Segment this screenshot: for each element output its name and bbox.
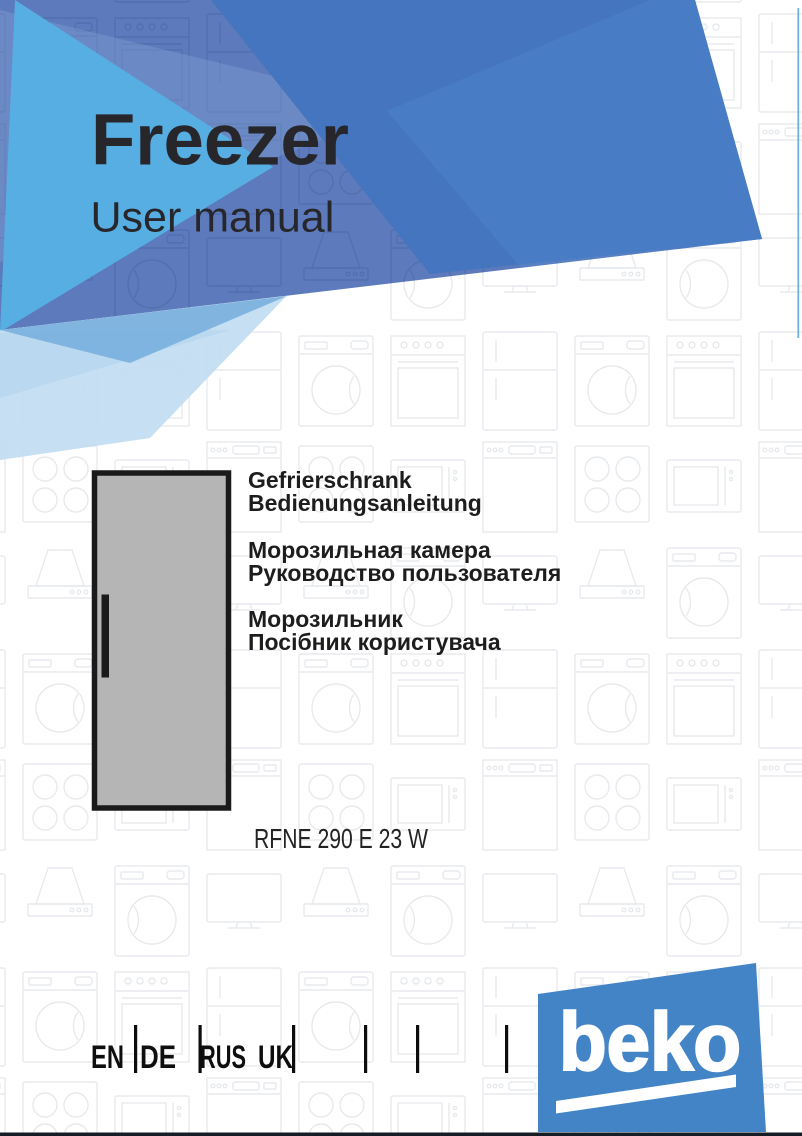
svg-text:Bedienungsanleitung: Bedienungsanleitung <box>248 490 482 516</box>
svg-text:RUS: RUS <box>200 1039 246 1075</box>
svg-text:DE: DE <box>140 1039 176 1075</box>
svg-text:EN: EN <box>91 1039 124 1075</box>
svg-text:beko: beko <box>559 997 741 1088</box>
svg-text:User manual: User manual <box>91 194 335 242</box>
svg-text:Руководство пользователя: Руководство пользователя <box>248 560 561 586</box>
svg-text:UK: UK <box>258 1039 293 1075</box>
svg-text:Посібник користувача: Посібник користувача <box>248 629 501 655</box>
svg-text:RFNE 290 E 23 W: RFNE 290 E 23 W <box>254 823 428 854</box>
svg-text:Freezer: Freezer <box>91 100 349 181</box>
